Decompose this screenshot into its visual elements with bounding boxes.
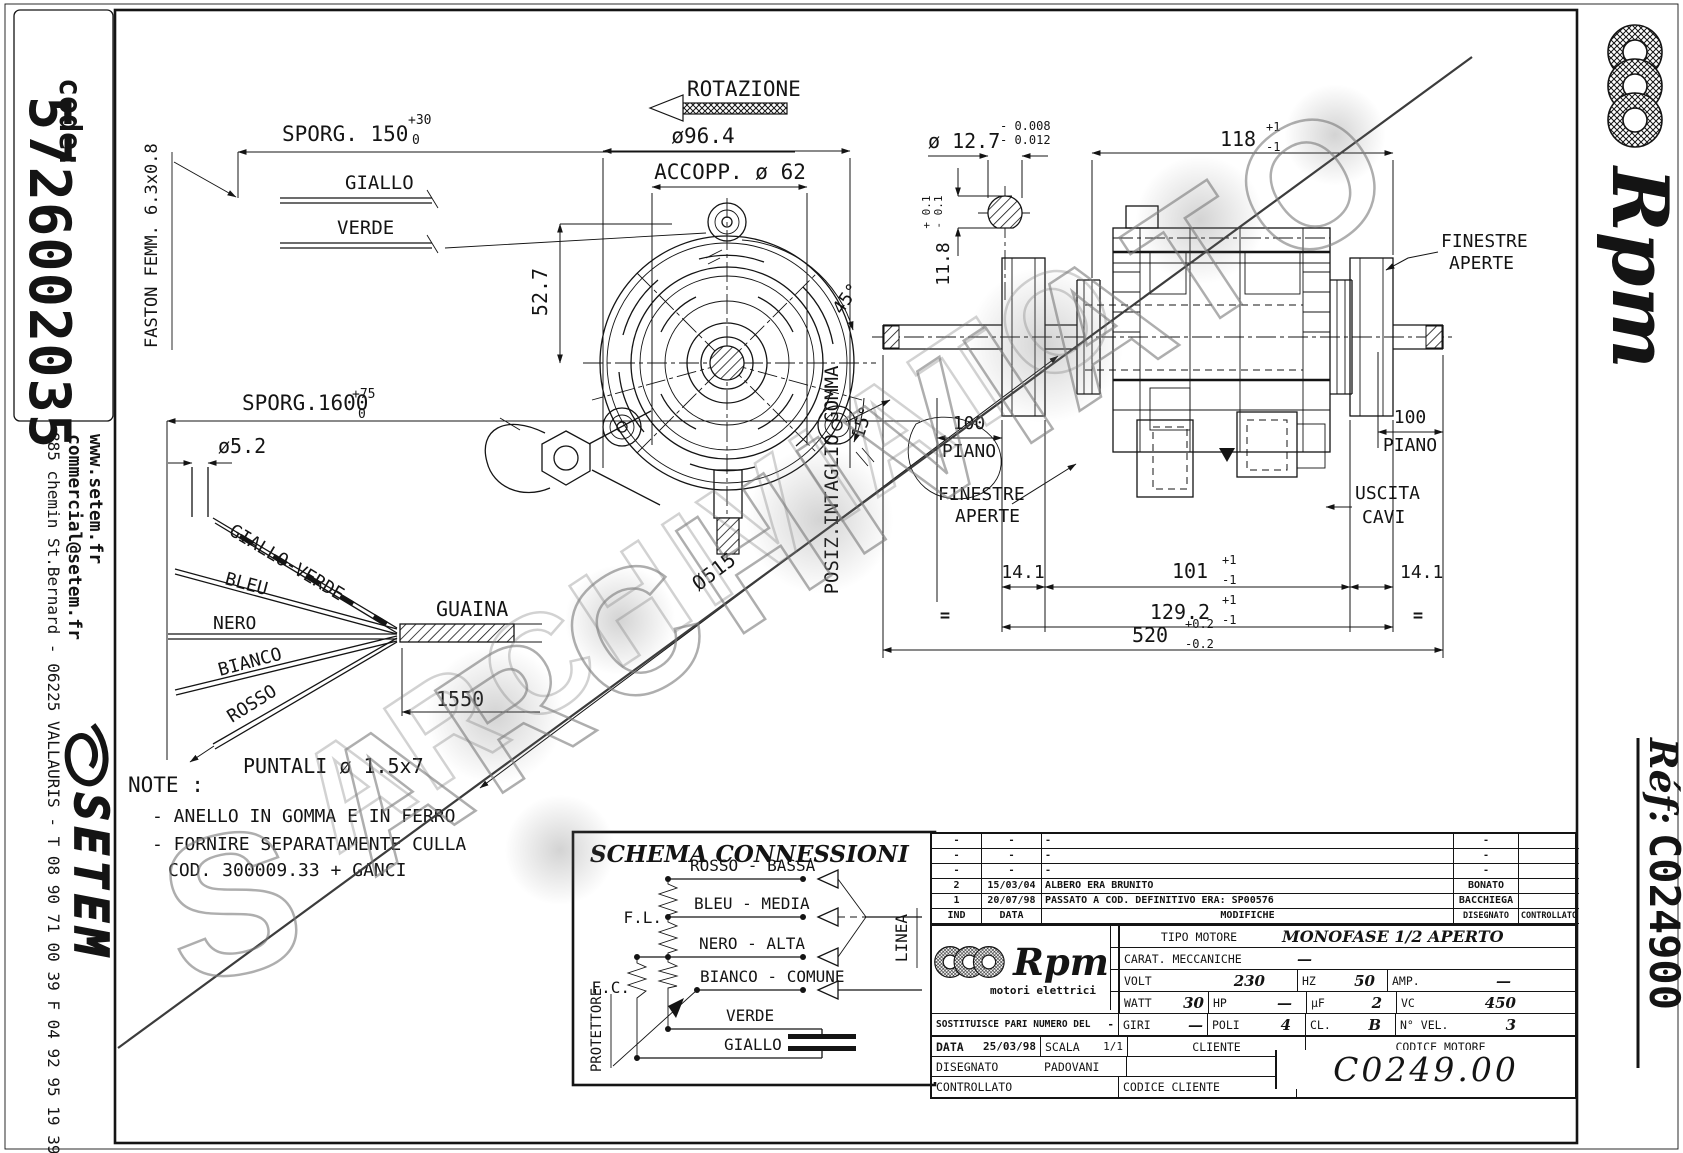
vc-value: 450 [1485, 993, 1516, 1013]
dim-101-tol-up: +1 [1222, 553, 1236, 567]
rev-mod: PASSATO A COD. DEFINITIVO ERA: SP00576 [1042, 894, 1454, 909]
piano-right: PIANO [1383, 435, 1437, 456]
dia964-dim: ø96.4 [671, 124, 734, 148]
nvel-label: N° VEL. [1400, 1015, 1448, 1035]
finestre-tr-1: FINESTRE [1441, 231, 1528, 252]
rpm-brand-corner: Rpm [1594, 165, 1683, 369]
dim-520-tol-up: +0.2 [1185, 617, 1214, 631]
rev-date: 15/03/04 [982, 879, 1042, 894]
dim-520: 520 [1132, 623, 1168, 647]
schema-giallo: GIALLO [724, 1035, 782, 1054]
volt-value: 230 [1234, 971, 1265, 991]
dim-141-left: 14.1 [1001, 562, 1044, 583]
title-block-main: Rpm motori elettrici C0249.00 TIPO MOTOR… [930, 924, 1577, 1099]
rev-date: 20/07/98 [982, 894, 1042, 909]
uscita-label: USCITA [1355, 483, 1420, 504]
uf-label: µF [1311, 993, 1325, 1013]
volt-label: VOLT [1124, 971, 1152, 991]
wire-rosso-label: ROSSO [224, 681, 281, 728]
rev-mod: - [1042, 834, 1454, 849]
wire-nero-label: NERO [213, 613, 256, 634]
wire-bleu-label: BLEU [223, 569, 270, 601]
controllato-label: CONTROLLATO [936, 1077, 1012, 1097]
rev-header-modifiche: MODIFICHE [1042, 909, 1454, 924]
finestre-tr-2: APERTE [1449, 253, 1514, 274]
scala-label: SCALA [1045, 1037, 1080, 1056]
hp-label: HP [1213, 993, 1227, 1013]
dim-141-right: 14.1 [1400, 562, 1443, 583]
dim-101: 101 [1172, 559, 1208, 583]
setem-logo: SETEM [64, 725, 118, 961]
setem-email: commercial@setem.fr [64, 434, 85, 640]
eq-right: = [1413, 606, 1423, 626]
dim-101-tol-dn: -1 [1222, 573, 1236, 587]
cavi-label: CAVI [1362, 507, 1405, 528]
rev-date: - [982, 834, 1042, 849]
len-1550-dim: 1550 [436, 687, 484, 711]
code-value: 5726002035 [16, 96, 82, 449]
dim-118-tol-dn: -1 [1266, 140, 1280, 154]
note-line-1: - ANELLO IN GOMMA E IN FERRO [152, 806, 455, 827]
rev-ind: - [932, 849, 982, 864]
eq-left: = [940, 606, 950, 626]
rev-ind: 2 [932, 879, 982, 894]
dim-527: 52.7 [528, 268, 552, 316]
sporg150-tol-dn: 0 [412, 133, 420, 148]
setem-logo-text: SETEM [64, 793, 118, 961]
selector-arrow-bassa [818, 870, 838, 888]
revision-table: - - - - - - - - - - - - 2 15/03/04 ALBER… [930, 832, 1577, 924]
rpm-logo-corner: Rpm [1594, 25, 1683, 369]
engineering-drawing-sheet: FASTON FEMM. 6.3x0.8 SPORG. 150 +30 0 GI… [0, 0, 1683, 1153]
rev-ctl [1519, 879, 1579, 894]
rev-ctl [1519, 834, 1579, 849]
ref-block: Réf: C024900 [1638, 737, 1683, 1068]
angle-45: 45° [829, 280, 865, 319]
dim-118: 118 [1220, 127, 1256, 151]
gomma-label: POSIZ.INTAGLIO GOMMA [821, 365, 843, 594]
sporg150-dim: SPORG. 150 [282, 122, 408, 146]
rpm-coils-icon-small [933, 944, 1007, 980]
note-block: NOTE : - ANELLO IN GOMMA E IN FERRO - FO… [128, 773, 466, 881]
nvel-value: 3 [1506, 1015, 1516, 1035]
motor-side-view: 118 +1 -1 FINESTRE APERTE FINESTRE APERT… [872, 120, 1528, 658]
dim-1292-tol-up: +1 [1222, 593, 1236, 607]
dim-1292-tol-dn: -1 [1222, 613, 1236, 627]
amp-value: — [1496, 971, 1511, 991]
rpm-brand-title-block: Rpm [1013, 940, 1109, 984]
rev-mod: - [1042, 849, 1454, 864]
cable-exit-arrow [1219, 448, 1235, 462]
rev-dis: - [1454, 849, 1519, 864]
schema-bianco-comune: BIANCO - COMUNE [700, 967, 845, 986]
vc-label: VC [1401, 993, 1415, 1013]
carat-value: — [1297, 949, 1312, 969]
cl-value: B [1368, 1015, 1381, 1035]
watt-label: WATT [1124, 993, 1152, 1013]
giri-value: — [1188, 1015, 1203, 1035]
rev-header-ind: IND [932, 909, 982, 924]
sostituisce-label: SOSTITUISCE PARI NUMERO DEL [936, 1015, 1090, 1035]
scala-value: 1/1 [1103, 1037, 1123, 1056]
code-box: code: 5726002035 [14, 10, 113, 449]
rev-ctl [1519, 849, 1579, 864]
dia52-dim: ø5.2 [218, 434, 266, 458]
faston-label: FASTON FEMM. 6.3x0.8 [142, 143, 162, 348]
rotation-arrow-bar [683, 103, 787, 114]
rev-dis: - [1454, 864, 1519, 879]
cl-label: CL. [1310, 1015, 1331, 1035]
hz-value: 50 [1354, 971, 1375, 991]
sporg1600-dim: SPORG.1600 [242, 391, 368, 415]
rotazione-label: ROTAZIONE [687, 77, 801, 101]
rev-mod: ALBERO ERA BRUNITO [1042, 879, 1454, 894]
setem-website: www.setem.fr [85, 434, 106, 564]
ref-label: Réf: [1641, 737, 1683, 824]
puntali-label: PUNTALI ø 1.5x7 [243, 754, 424, 778]
schema-linea: LINEA [892, 914, 911, 963]
wire-verde-label: VERDE [337, 217, 394, 239]
title-block: - - - - - - - - - - - - 2 15/03/04 ALBER… [930, 832, 1577, 1082]
poli-value: 4 [1281, 1015, 1291, 1035]
finestre-bl-1: FINESTRE [938, 484, 1025, 505]
sporg1600-tol-up: +75 [352, 387, 375, 402]
codice-cliente-label: CODICE CLIENTE [1123, 1077, 1220, 1097]
wire-bianco-label: BIANCO [216, 644, 284, 681]
rev-ind: - [932, 834, 982, 849]
guaina-sheath [400, 624, 514, 642]
sostituisce-value: - [1107, 1015, 1114, 1035]
rev-ctl [1519, 864, 1579, 879]
rotation-arrow-head [650, 95, 683, 121]
finestre-bl-2: APERTE [955, 506, 1020, 527]
rev-ctl [1519, 894, 1579, 909]
harness-detail: SPORG.1600 +75 0 ø5.2 GIALLO-VERDE BLEU … [167, 387, 920, 778]
note-line-2: - FORNIRE SEPARATAMENTE CULLA [152, 834, 466, 855]
dim-520-tol-dn: -0.2 [1185, 637, 1214, 651]
dia127-tol-up: - 0.008 [1000, 119, 1051, 133]
dim-100-right: 100 [1394, 407, 1427, 428]
hz-label: HZ [1302, 971, 1316, 991]
data-label: DATA [936, 1037, 964, 1056]
ref-value: C024900 [1640, 833, 1683, 1010]
schema-fl: F.L. [623, 908, 662, 927]
rev-header-controllato: CONTROLLATO [1519, 909, 1579, 924]
flat-118-dim: 11.8 [933, 242, 954, 285]
schema-connessioni: SCHEMA CONNESSIONI ROSSO - BASSA BLEU - … [573, 832, 935, 1085]
setem-address: 885 chemin St.Bernard - 06225 VALLAURIS … [44, 432, 63, 1153]
piano-left: PIANO [942, 441, 996, 462]
rpm-coils-icon [1608, 25, 1662, 147]
rev-dis: BACCHIEGA [1454, 894, 1519, 909]
rev-dis: - [1454, 834, 1519, 849]
amp-label: AMP. [1392, 971, 1420, 991]
schema-protettore: PROTETTORE [589, 988, 605, 1072]
schema-bleu-media: BLEU - MEDIA [694, 894, 810, 913]
rev-date: - [982, 849, 1042, 864]
dia127-tol-dn: - 0.012 [1000, 133, 1051, 147]
note-title: NOTE : [128, 773, 204, 797]
accopp-dim: ACCOPP. ø 62 [654, 160, 806, 184]
rev-header-data: DATA [982, 909, 1042, 924]
sporg1600-tol-dn: 0 [358, 407, 366, 422]
codice-motore-value: C0249.00 [1275, 1050, 1575, 1089]
selector-arrow-alta [818, 948, 838, 966]
setem-sidebar: www.setem.fr commercial@setem.fr 885 che… [44, 432, 118, 1153]
angle-15: 15° [848, 404, 878, 441]
poli-label: POLI [1212, 1015, 1240, 1035]
watt-value: 30 [1183, 993, 1204, 1013]
data-value: 25/03/98 [983, 1037, 1036, 1056]
carat-label: CARAT. MECCANICHE [1124, 949, 1242, 969]
flat-tol-dn: - 0.1 [932, 195, 945, 228]
schema-rosso-bassa: ROSSO - BASSA [690, 856, 816, 875]
rpm-logo-cell: Rpm motori elettrici [932, 926, 1111, 1010]
shaft-section-detail: ø 12.7 - 0.008 - 0.012 11.8 + 0.1 - 0.1 [920, 119, 1051, 300]
rev-date: - [982, 864, 1042, 879]
hp-value: — [1277, 993, 1292, 1013]
disegnato-value: PADOVANI [1044, 1057, 1099, 1076]
cliente-label: CLIENTE [1192, 1037, 1240, 1056]
rev-ind: 1 [932, 894, 982, 909]
schema-verde: VERDE [726, 1006, 774, 1025]
schema-nero-alta: NERO - ALTA [699, 934, 805, 953]
rev-header-disegnato: DISEGNATO [1454, 909, 1519, 924]
rev-mod: - [1042, 864, 1454, 879]
selector-arrow-media [818, 908, 838, 926]
rpm-subtitle: motori elettrici [990, 984, 1096, 997]
faston-detail: FASTON FEMM. 6.3x0.8 SPORG. 150 +30 0 GI… [142, 113, 795, 350]
dia127-dim: ø 12.7 [928, 129, 1000, 153]
giri-label: GIRI [1123, 1015, 1151, 1035]
dim-118-tol-up: +1 [1266, 120, 1280, 134]
wire-giallo-label: GIALLO [345, 172, 414, 194]
tipo-motore-label: TIPO MOTORE [1161, 927, 1237, 947]
sporg150-tol-up: +30 [408, 113, 431, 128]
disegnato-label: DISEGNATO [936, 1057, 998, 1076]
uf-value: 2 [1372, 993, 1382, 1013]
rev-dis: BONATO [1454, 879, 1519, 894]
tipo-motore-value: MONOFASE 1/2 APERTO [1282, 927, 1504, 947]
rev-ind: - [932, 864, 982, 879]
guaina-label: GUAINA [436, 597, 508, 621]
